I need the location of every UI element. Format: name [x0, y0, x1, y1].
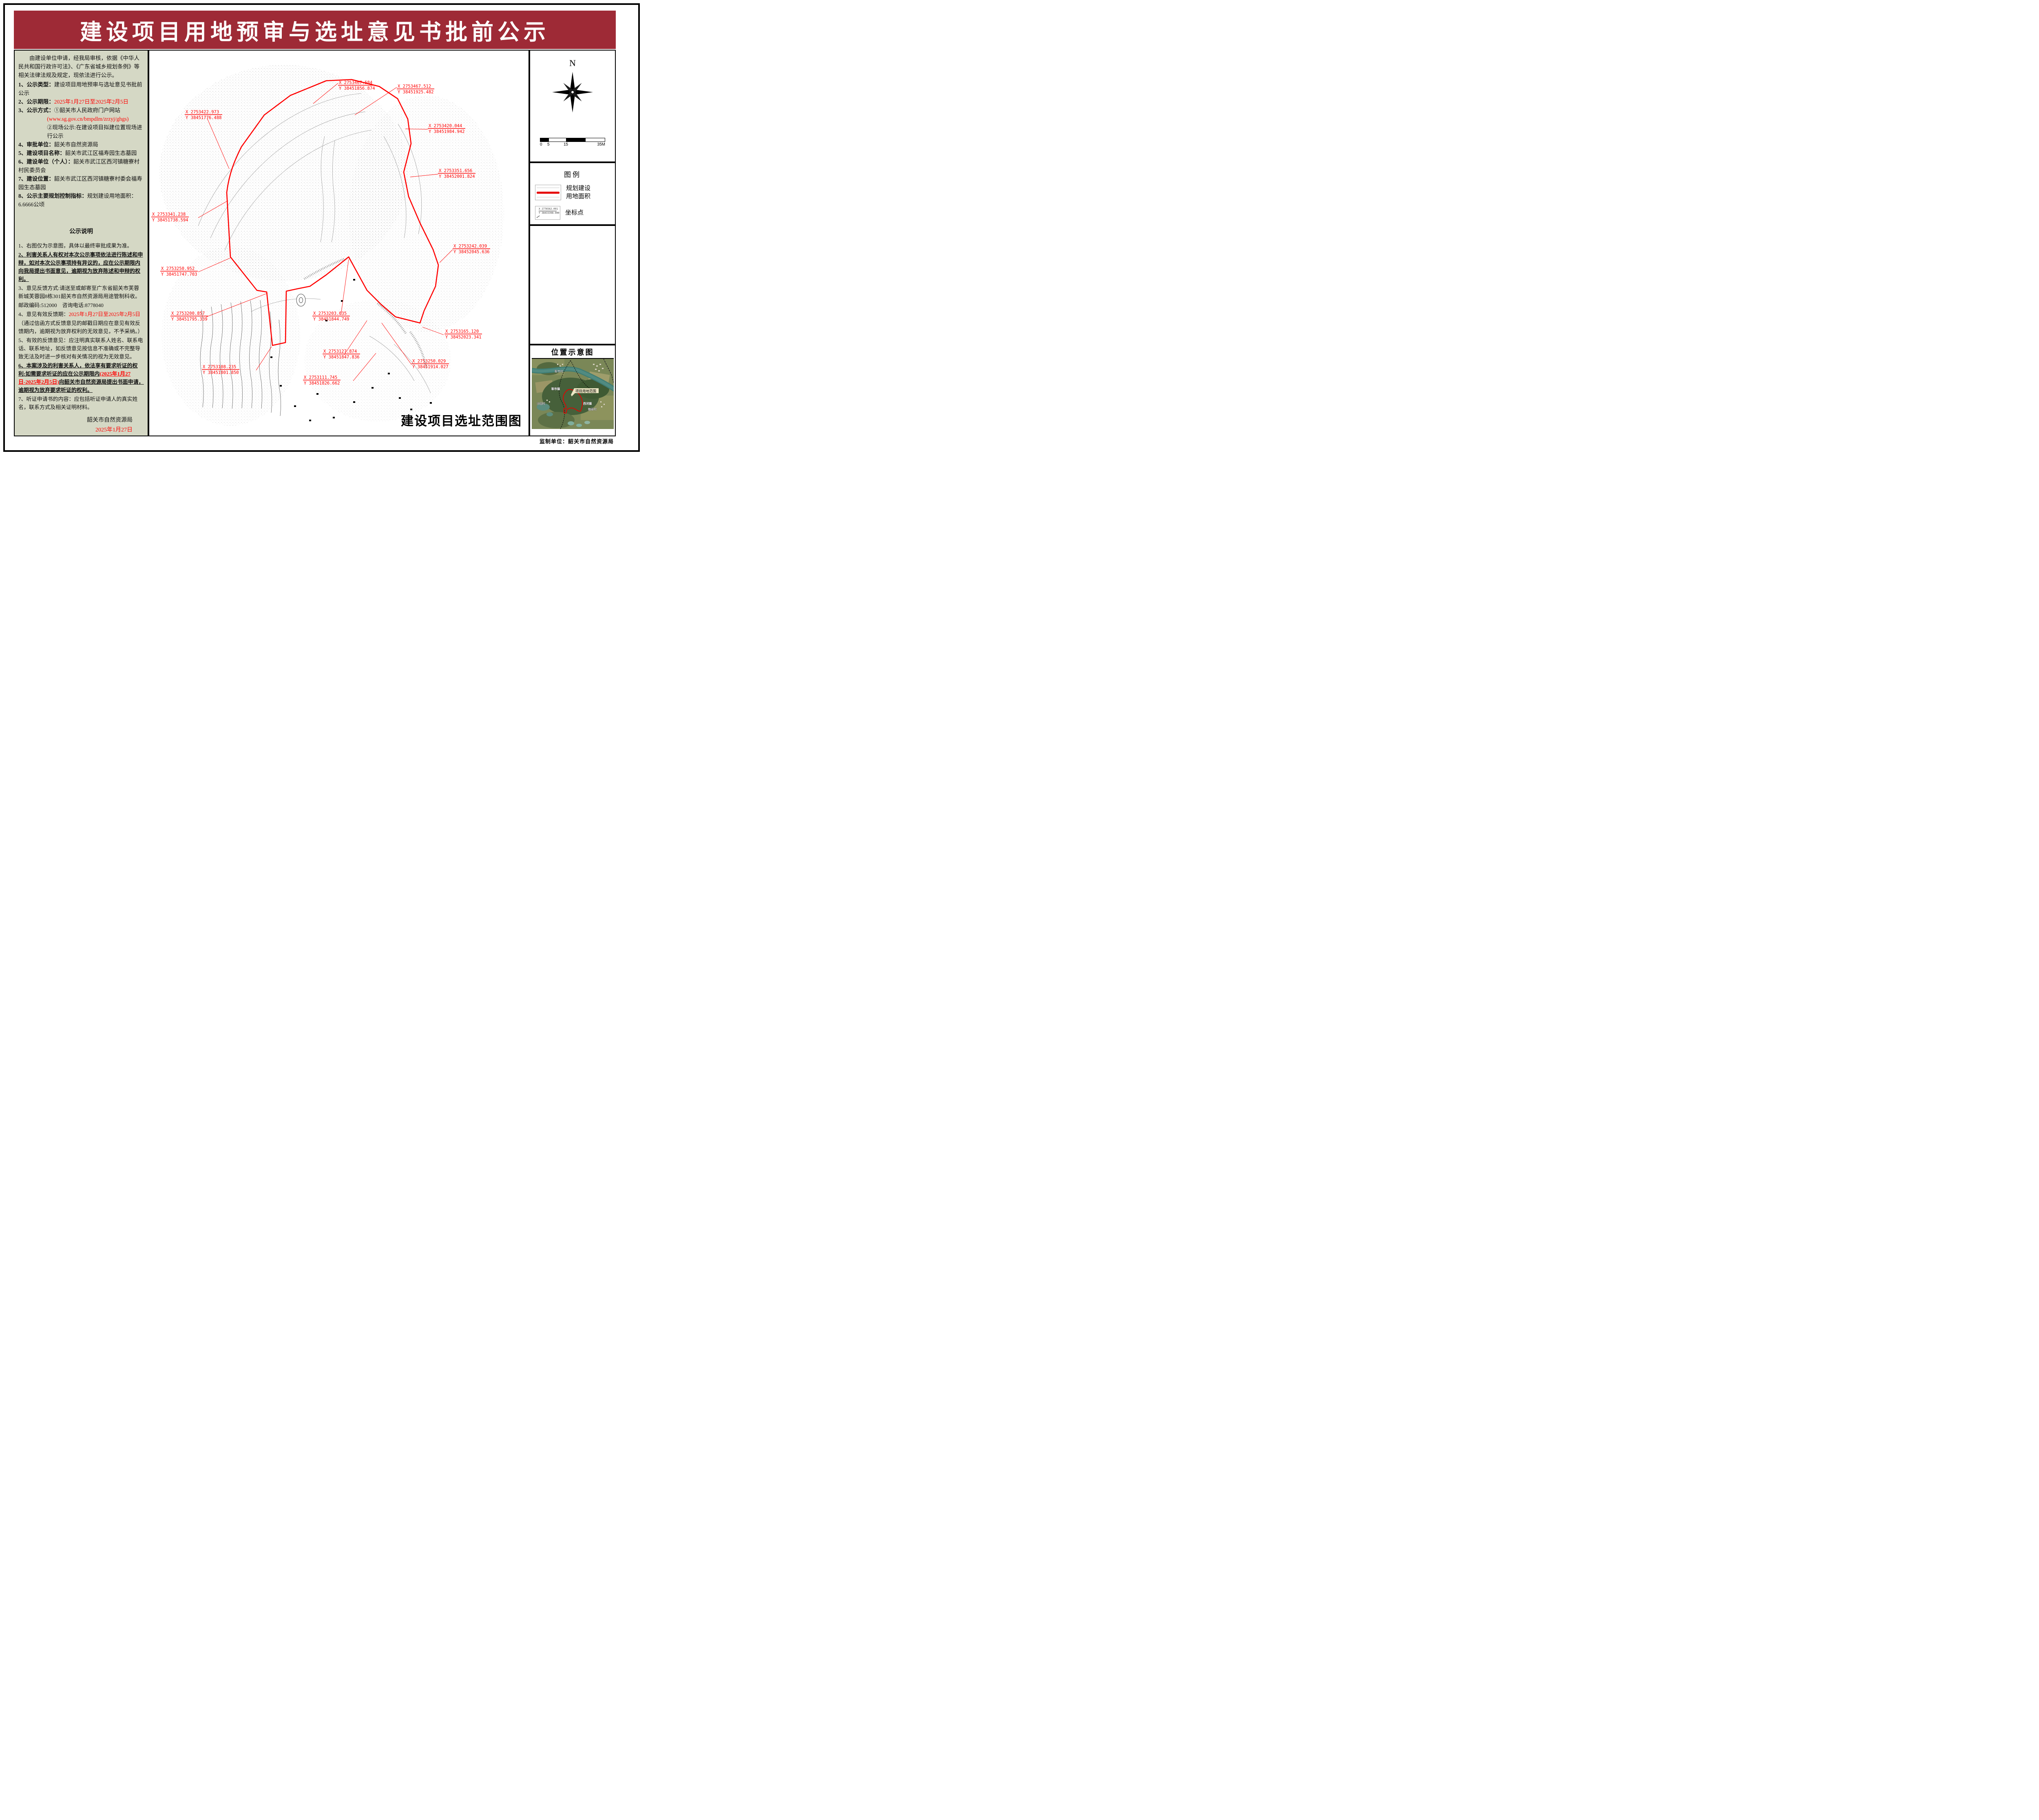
note-3: 3、意见反馈方式:请送至或邮寄至广东省韶关市芙蓉新城芙蓉园8栋301韶关市自然资… [18, 284, 144, 301]
svg-text:Y 38451914.027: Y 38451914.027 [412, 365, 449, 369]
note-7: 7、听证申请书的内容：应包括听证申请人的真实姓名，联系方式及相关证明材料。 [18, 395, 144, 411]
item-notice-method: 3、公示方式：①韶关市人民政府门户网站 [18, 106, 144, 115]
note-2: 2、利害关系人有权对本次公示事项依法进行陈述和申辩，如对本次公示事项持有异议的，… [18, 251, 144, 283]
svg-text:X 2753242.039: X 2753242.039 [453, 244, 487, 249]
svg-text:Y 38451776.488: Y 38451776.488 [186, 115, 222, 120]
svg-text:N: N [569, 58, 576, 68]
legend-item-coordinate: X 2776562.091 Y 38433398.900 坐标点 [535, 206, 611, 220]
satellite-thumbnail: 犁市村 犁市镇 沙园村 西河镇 糖寮村 项目用地范围 [532, 359, 614, 429]
note-3b: 邮政编码:512000 咨询电话:8778040 [18, 301, 144, 310]
page-title: 建设项目用地预审与选址意见书批前公示 [80, 14, 550, 46]
boundary-swatch-icon [535, 185, 561, 200]
note-6: 6、本案涉及的利害关系人，依法享有要求听证的权利:如需要求听证的应在公示期限内(… [18, 362, 144, 394]
signature-date: 2025年1月27日 [18, 425, 133, 435]
signature-org: 韶关市自然资源局 [18, 416, 133, 425]
svg-text:X 2753341.238: X 2753341.238 [152, 212, 186, 217]
svg-text:X 2753467.512: X 2753467.512 [398, 84, 431, 89]
location-satellite-map: 犁市村 犁市镇 沙园村 西河镇 糖寮村 项目用地范围 [532, 358, 614, 429]
svg-text:X 2753165.120: X 2753165.120 [445, 329, 479, 334]
svg-text:犁市镇: 犁市镇 [551, 387, 560, 391]
info-panel: 由建设单位申请，经我局审核，依据《中华人民共和国行政许可法》、《广东省城乡规划条… [14, 50, 148, 436]
title-banner: 建设项目用地预审与选址意见书批前公示 [14, 11, 616, 49]
map-title: 建设项目选址范围图 [401, 411, 522, 429]
legend-item-boundary: 规划建设 用地面积 [535, 184, 611, 201]
note-4: 4、意见有效反馈期：2025年1月27日至2025年2月5日 [18, 310, 144, 318]
svg-text:Y 38451984.942: Y 38451984.942 [429, 129, 465, 134]
item-notice-type: 1、公示类型：建设项目用地预审与选址意见书批前公示 [18, 80, 144, 97]
right-column: N 0 5 15 35M [529, 50, 616, 436]
svg-text:X 2753200.857: X 2753200.857 [171, 311, 205, 316]
svg-text:Y 38451844.749: Y 38451844.749 [313, 317, 349, 322]
svg-text:Y 38452001.824: Y 38452001.824 [439, 174, 475, 179]
svg-text:X 2753420.044: X 2753420.044 [429, 124, 462, 128]
svg-text:X 2753351.656: X 2753351.656 [439, 168, 472, 173]
svg-text:Y 38451801.850: Y 38451801.850 [203, 370, 239, 375]
scale-bar-ticks: 0 5 15 35M [540, 142, 605, 148]
svg-text:X 2753127.874: X 2753127.874 [323, 349, 357, 354]
note-4b: （通过信函方式反馈意见的邮戳日期应在意见有效反馈期内，逾期视为放弃权利的无效意见… [18, 319, 144, 336]
item-approval-authority: 4、审批单位：韶关市自然资源局 [18, 140, 144, 149]
coord-label: X 2753165.120Y 38452023.341 [445, 329, 482, 340]
svg-text:X 2753108.235: X 2753108.235 [203, 365, 236, 369]
svg-text:糖寮村: 糖寮村 [588, 407, 597, 411]
signature-block: 韶关市自然资源局 2025年1月27日 [18, 416, 144, 435]
north-arrow: N [530, 51, 615, 125]
location-box: 位置示意图 [529, 345, 616, 436]
site-map: X 2753467.584Y 38451856.874 X 2753467.51… [148, 50, 529, 436]
item-notice-period: 2、公示期限：2025年1月27日至2025年2月5日 [18, 97, 144, 106]
legend-label-coordinate: 坐标点 [565, 209, 584, 217]
svg-text:X 2753111.745: X 2753111.745 [304, 375, 337, 380]
producer-credit: 监制单位：韶关市自然资源局 [540, 437, 614, 445]
legend-title: 图例 [530, 169, 615, 179]
location-map-title: 位置示意图 [530, 347, 615, 357]
coord-label: X 2753467.512Y 38451925.482 [397, 84, 434, 95]
note-5: 5、有效的反馈意见：应注明真实联系人姓名、联系电话、联系地址，如反馈意见按信息不… [18, 336, 144, 361]
svg-text:Y 38451847.836: Y 38451847.836 [323, 355, 360, 360]
svg-text:西河镇: 西河镇 [583, 402, 592, 405]
item-location: 7、建设位置：韶关市武江区西河镇糖寮村委会福寿园生态墓园 [18, 175, 144, 192]
svg-text:沙园村: 沙园村 [537, 402, 545, 405]
svg-text:X 2753422.973: X 2753422.973 [186, 110, 219, 115]
svg-text:Y 38451856.874: Y 38451856.874 [339, 86, 375, 91]
legend-label-boundary: 规划建设 用地面积 [566, 184, 590, 201]
scale-bar-segments [540, 138, 605, 142]
svg-text:犁市村: 犁市村 [555, 369, 563, 373]
svg-text:X 2753203.035: X 2753203.035 [313, 311, 347, 316]
item-project-name: 5、建设项目名称：韶关市武江区福寿园生态墓园 [18, 149, 144, 157]
coordinate-swatch-icon: X 2776562.091 Y 38433398.900 [535, 206, 560, 220]
svg-text:Y 38451747.703: Y 38451747.703 [161, 272, 197, 277]
svg-text:Y 38451925.482: Y 38451925.482 [398, 90, 434, 95]
spacer-box [529, 225, 616, 345]
note-1: 1、右图仅为示意图，具体以最终审批成果为准。 [18, 242, 144, 250]
notes-heading: 公示说明 [18, 228, 144, 236]
compass-icon: N [548, 55, 597, 125]
svg-text:Y 38452023.341: Y 38452023.341 [445, 335, 482, 340]
notice-url: (www.sg.gov.cn/bmpdlm/zrzyj/ghgs) [18, 115, 144, 123]
topographic-map-svg: X 2753467.584Y 38451856.874 X 2753467.51… [149, 51, 529, 436]
item-notice-method-2: ②现场公示:在建设项目拟建位置现场进行公示 [18, 123, 144, 140]
item-planning-indicator: 8、公示主要规划控制指标：规划建设用地面积：6.6666公顷 [18, 192, 144, 209]
svg-text:Y 38451826.662: Y 38451826.662 [304, 381, 340, 386]
notice-page: 建设项目用地预审与选址意见书批前公示 由建设单位申请，经我局审核，依据《中华人民… [0, 0, 643, 455]
intro-paragraph: 由建设单位申请，经我局审核，依据《中华人民共和国行政许可法》、《广东省城乡规划条… [18, 54, 144, 80]
svg-text:Y 38451795.339: Y 38451795.339 [171, 317, 208, 322]
legend-box: 图例 规划建设 用地面积 X 2776562.091 Y 38433398.90… [529, 162, 616, 225]
item-construction-unit: 6、建设单位（个人）：韶关市武江区西河镇糖寮村村民委员会 [18, 157, 144, 175]
svg-text:Y 38452045.636: Y 38452045.636 [453, 250, 490, 254]
svg-text:X 2753467.584: X 2753467.584 [339, 80, 372, 85]
scale-bar: 0 5 15 35M [540, 138, 605, 148]
callout-label: 项目用地范围 [575, 389, 596, 393]
svg-text:Y 38451738.594: Y 38451738.594 [152, 218, 188, 223]
svg-text:X 2753250.029: X 2753250.029 [412, 359, 446, 364]
north-scale-box: N 0 5 15 35M [529, 50, 616, 162]
svg-text:X 2753250.952: X 2753250.952 [161, 266, 195, 271]
